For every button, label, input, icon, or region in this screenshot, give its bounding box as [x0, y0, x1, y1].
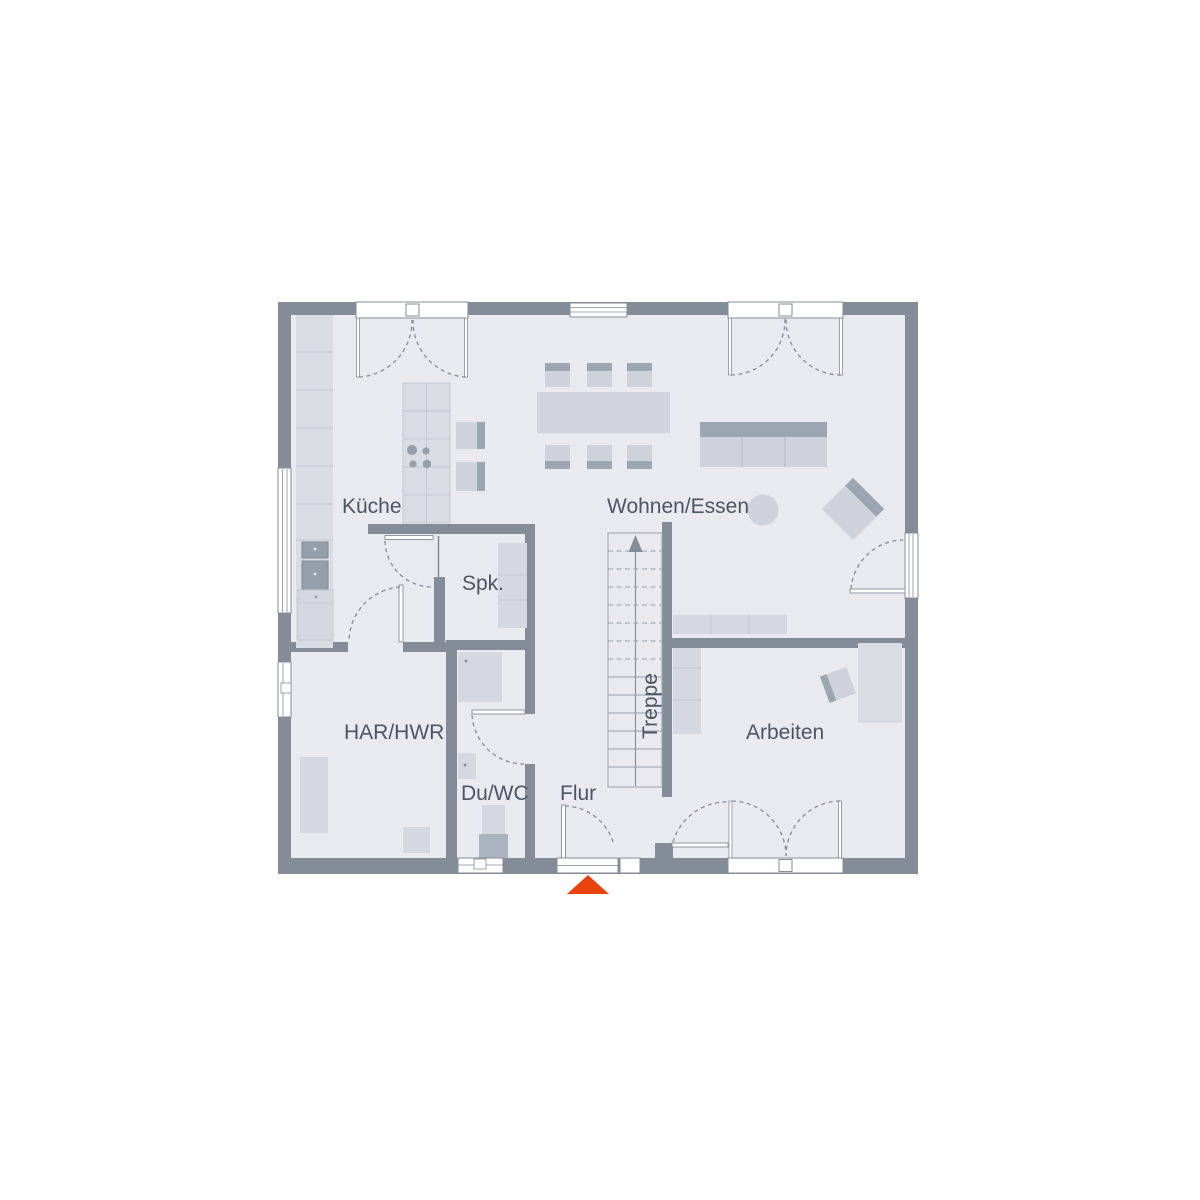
coffee-table	[748, 495, 779, 526]
sink	[458, 753, 476, 779]
floor-plan-page: Küche Wohnen/Essen Spk. HAR/HWR Du/WC Fl…	[0, 0, 1200, 1200]
utility-cabinet	[300, 757, 328, 833]
room-label-kueche: Küche	[342, 495, 402, 518]
desk	[858, 643, 902, 723]
floor-plan-drawing: Küche Wohnen/Essen Spk. HAR/HWR Du/WC Fl…	[0, 0, 1200, 1200]
entrance-marker-icon	[567, 875, 609, 894]
window-top	[570, 303, 627, 317]
room-label-har-hwr: HAR/HWR	[344, 721, 444, 744]
sofa-back	[700, 422, 827, 437]
room-label-treppe: Treppe	[639, 673, 662, 739]
bookshelf	[673, 648, 701, 734]
room-label-arbeiten: Arbeiten	[746, 721, 824, 744]
room-label-wohnen-essen: Wohnen/Essen	[607, 495, 749, 518]
wall-kueche-spk	[368, 524, 535, 534]
wall-stub-flur	[655, 843, 673, 858]
toilet	[482, 805, 505, 835]
stairs	[608, 533, 662, 787]
wall-spk-duwc	[446, 640, 535, 650]
storage-block	[403, 827, 430, 853]
sofa	[700, 437, 827, 467]
wall-spk-left	[434, 577, 445, 652]
window-har-left	[278, 662, 291, 717]
dishwasher	[302, 561, 328, 592]
dining-table	[537, 392, 670, 433]
sideboard	[673, 615, 787, 634]
toilet-base	[479, 834, 508, 858]
room-label-du-wc: Du/WC	[461, 782, 529, 805]
room-label-flur: Flur	[560, 782, 596, 805]
wall-duwc-flur-lower	[525, 764, 535, 858]
window-kueche-left	[278, 468, 291, 613]
window-duwc-bottom	[458, 858, 503, 873]
room-label-spk: Spk.	[462, 572, 504, 595]
wall-har-duwc	[446, 650, 457, 858]
dining-furniture	[537, 363, 670, 469]
wall-stairs	[662, 522, 672, 797]
shower	[458, 652, 502, 702]
